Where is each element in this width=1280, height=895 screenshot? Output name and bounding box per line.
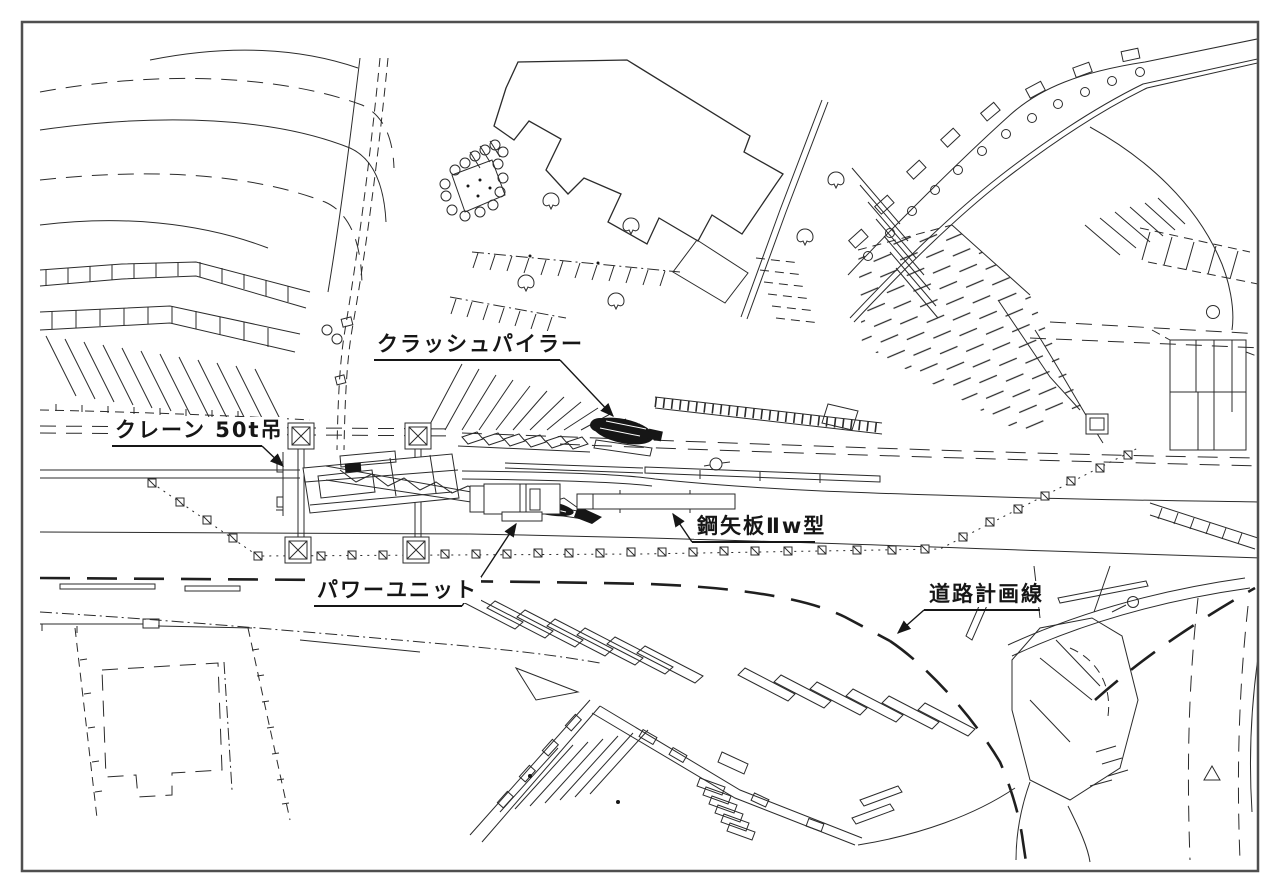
driven-pile-band — [655, 402, 882, 428]
parking-rows — [0, 252, 680, 332]
retaining-walls — [40, 262, 310, 429]
label-crane: クレーン 50t吊 — [112, 417, 287, 443]
intersection — [1008, 566, 1262, 862]
site-plan-canvas — [0, 0, 1280, 895]
right-building — [1152, 330, 1262, 450]
house-outline — [102, 663, 222, 797]
contour-lines — [40, 50, 394, 292]
power-unit — [470, 484, 560, 521]
median-bar — [645, 467, 880, 482]
label-road-plan-line: 道路計画線 — [926, 581, 1047, 607]
road-south-edge — [40, 532, 1260, 558]
crane-body — [303, 454, 459, 513]
crush-piler — [590, 413, 663, 456]
label-road-plan-line-text: 道路計画線 — [929, 582, 1044, 606]
bottom-left — [40, 612, 600, 820]
label-crush-piler: クラッシュパイラー — [374, 331, 587, 357]
label-crush-piler-text: クラッシュパイラー — [377, 332, 584, 356]
hatched-region — [858, 225, 1082, 432]
triangle-marker — [1204, 766, 1220, 780]
label-sheet-pile-text: 鋼矢板Ⅱw型 — [697, 514, 826, 538]
laid-sheet-piles — [458, 432, 590, 452]
road-center-left — [40, 470, 300, 478]
small-building — [673, 240, 748, 303]
road-planning-line — [40, 578, 1255, 862]
buildings — [440, 60, 1262, 450]
v-roads — [470, 668, 1015, 845]
stone-planter — [440, 140, 508, 221]
park-arc — [1090, 127, 1233, 330]
label-power-unit: パワーユニット — [314, 577, 481, 603]
label-crane-text: クレーン 50t吊 — [115, 418, 284, 442]
slope-hatch-left — [46, 336, 285, 429]
utility-circle — [1207, 306, 1220, 319]
manhole — [710, 458, 722, 470]
label-leaders — [112, 360, 1040, 633]
label-power-unit-text: パワーユニット — [317, 578, 478, 602]
site-plan-drawing: クラッシュパイラー クレーン 50t吊 鋼矢板Ⅱw型 パワーユニット 道路計画線 — [0, 0, 1280, 895]
sheet-pile-stack — [577, 490, 735, 513]
label-sheet-pile: 鋼矢板Ⅱw型 — [694, 513, 829, 539]
